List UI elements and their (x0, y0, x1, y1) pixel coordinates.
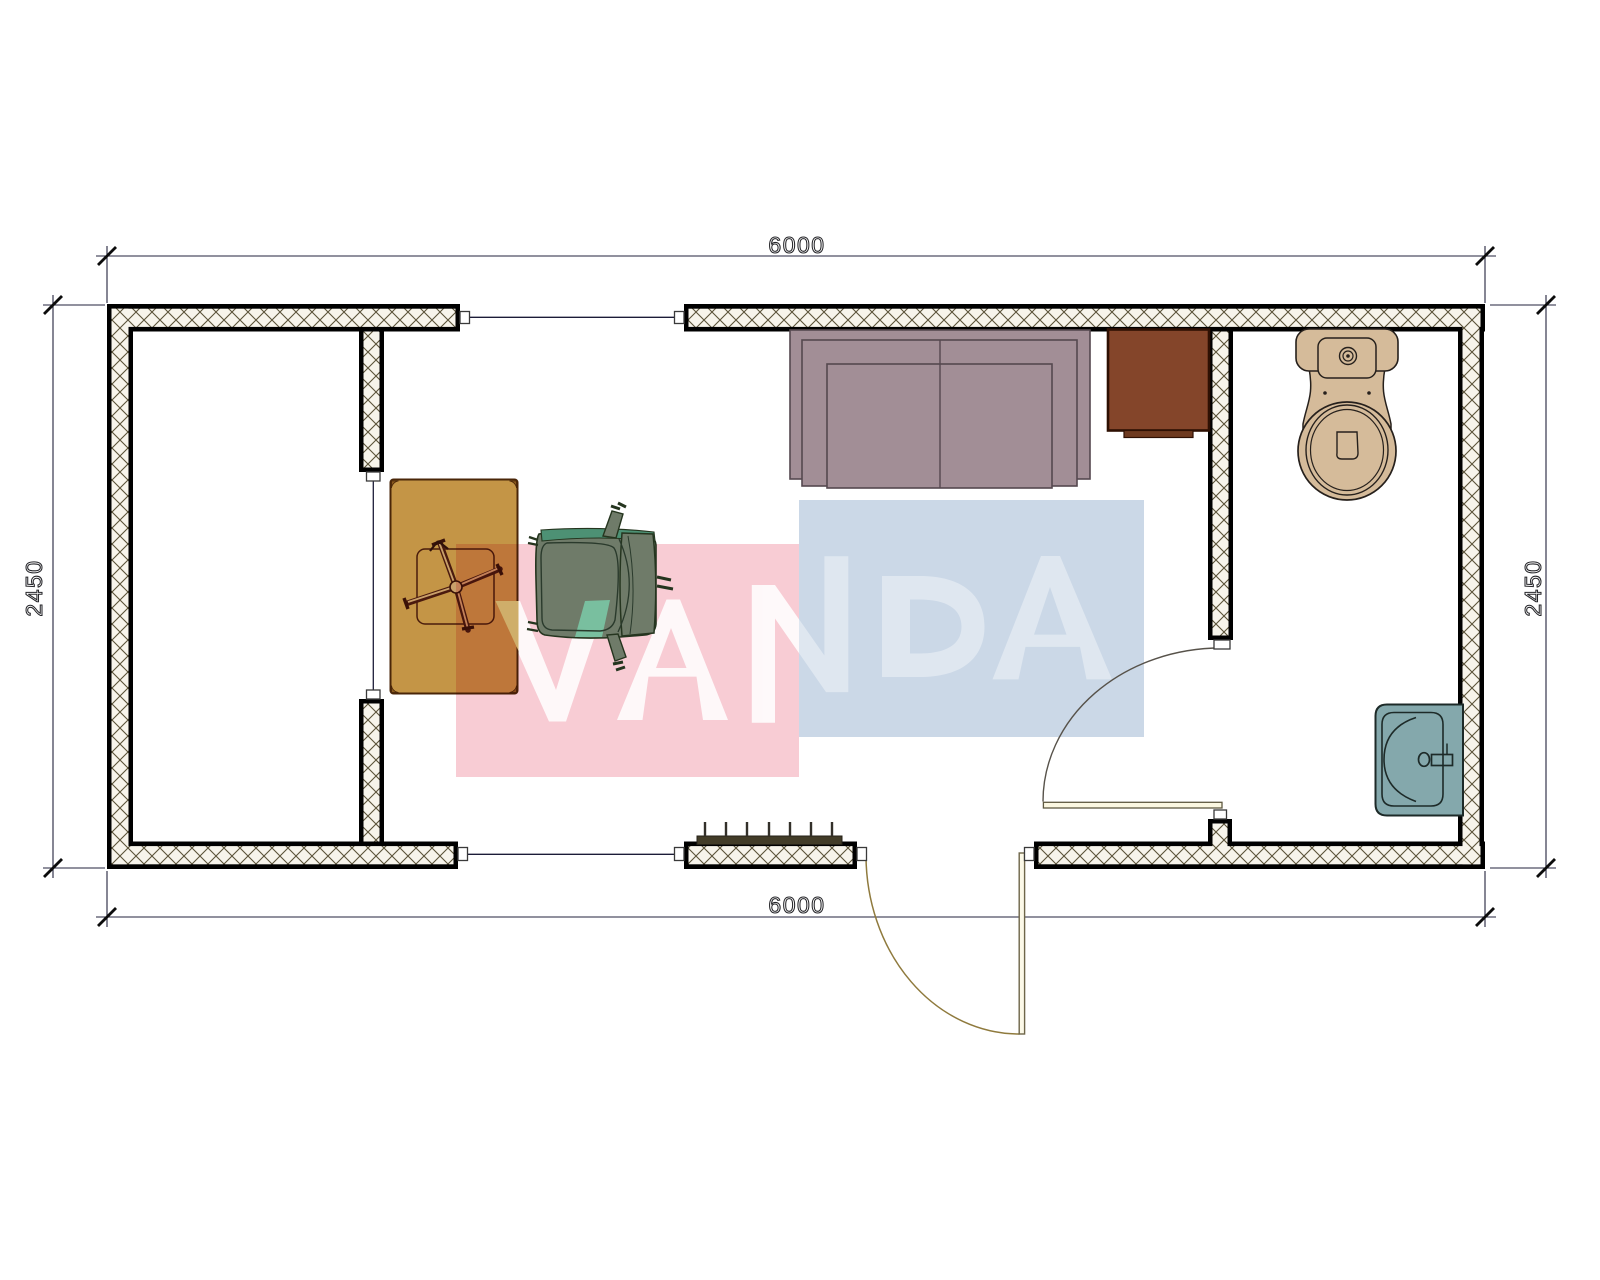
svg-text:2450: 2450 (21, 559, 47, 616)
svg-text:6000: 6000 (768, 892, 825, 918)
svg-text:6000: 6000 (768, 232, 825, 258)
svg-text:2450: 2450 (1520, 559, 1546, 616)
